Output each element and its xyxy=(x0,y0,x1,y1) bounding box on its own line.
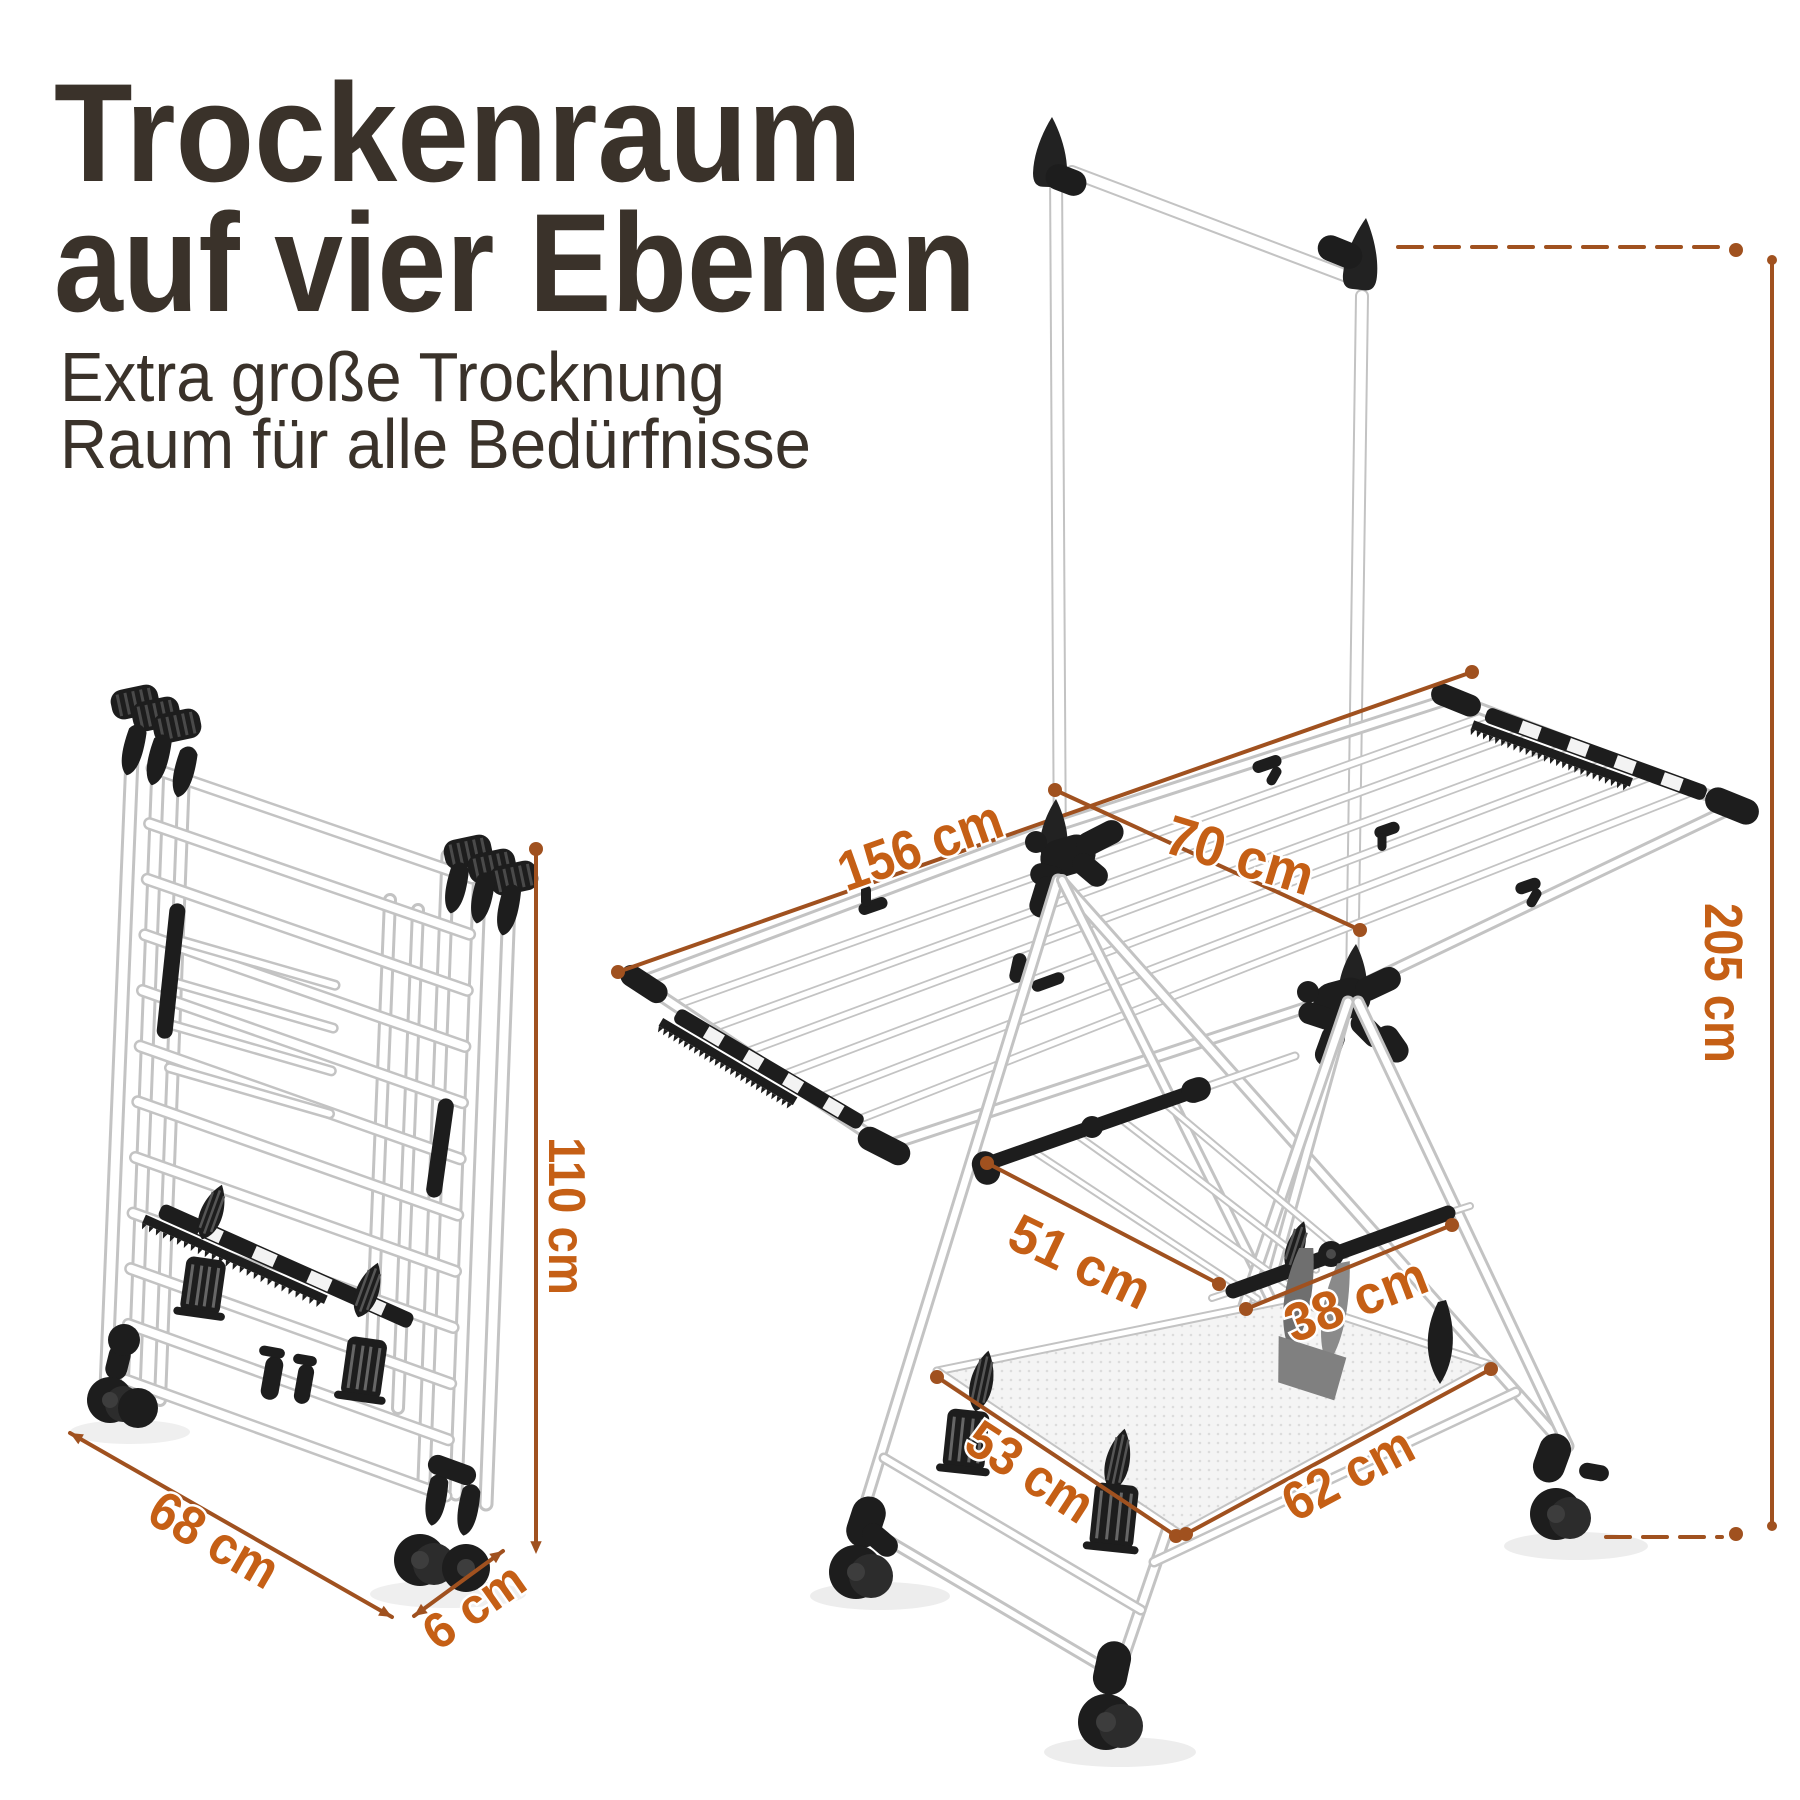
svg-text:Raum für alle Bedürfnisse: Raum für alle Bedürfnisse xyxy=(60,405,811,483)
svg-text:110 cm: 110 cm xyxy=(537,1137,595,1295)
svg-text:205 cm: 205 cm xyxy=(1693,903,1753,1063)
svg-text:auf vier Ebenen: auf vier Ebenen xyxy=(54,184,976,341)
